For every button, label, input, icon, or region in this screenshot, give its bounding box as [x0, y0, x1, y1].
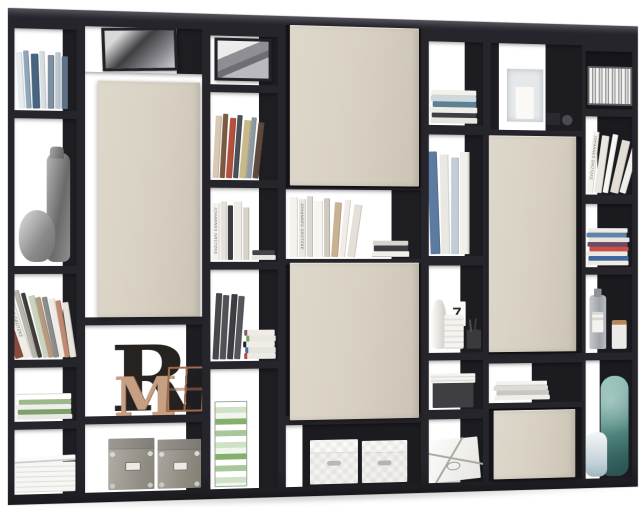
wire-cube-lantern: [166, 366, 202, 412]
compartment-c7-r4: [586, 275, 633, 353]
wire-file-rack: [587, 66, 632, 106]
magazine: [587, 251, 628, 256]
compartment-c7-r1: [586, 51, 633, 110]
magazine: [587, 242, 627, 247]
magazine: [244, 330, 275, 336]
magazine: [589, 247, 628, 252]
compartment-c3-r4: [210, 270, 277, 362]
oversized-book: [451, 157, 459, 254]
compartment-c4-r4: [286, 423, 421, 488]
compartment-c6-r3: [489, 362, 582, 403]
compartment-c2-r4: [85, 422, 202, 493]
paper-stack: [431, 373, 476, 383]
book-spine-gruetzke: JOHANNES GRÜTZKE: [212, 203, 219, 260]
glass-hurricane: [506, 68, 544, 123]
compartment-c3-r5: [210, 368, 277, 489]
small-white-vase: [586, 432, 608, 477]
compartment-c3-r1: [210, 35, 277, 85]
candle-jar-wood-lid: [612, 320, 627, 349]
white-ridged-vase: [444, 315, 463, 349]
glass-sphere: [562, 115, 572, 125]
glass-bottle: [589, 295, 606, 349]
flat-book: [432, 90, 477, 97]
photo-frame-abstract: [101, 27, 178, 71]
book-spine: [228, 205, 233, 260]
flat-book: [432, 113, 477, 119]
magazine: [587, 261, 628, 266]
paper-pile: [495, 395, 550, 401]
compartment-c5-r1: [429, 41, 483, 126]
compartment-c3-r3: JOHANNES GRÜTZKE: [210, 188, 277, 262]
compartment-c2-r1: [85, 26, 202, 76]
compartment-c7-r2: JOHANNES GRÜTZKE: [586, 116, 633, 195]
magazine: [246, 335, 275, 341]
bottle-neck: [594, 289, 601, 297]
book-spine: [39, 51, 47, 109]
compartment-c5-r4: [429, 360, 483, 410]
book-spine-gruetzke: JOHANNES GRÜTZKE: [299, 199, 306, 257]
flat-book: [430, 107, 478, 114]
magazine: [19, 399, 71, 405]
door-c: [290, 263, 419, 421]
storage-box-grey: [108, 438, 154, 490]
newspaper-stack: [16, 461, 76, 492]
book-spine: [221, 201, 227, 259]
oversized-book: [460, 152, 470, 254]
magazine: [244, 353, 276, 359]
pillar-candle: [516, 84, 534, 119]
magazine: [243, 341, 275, 347]
magazine: [588, 237, 629, 242]
flat-book: [431, 117, 478, 123]
magazine: [17, 414, 73, 420]
door-d: [489, 135, 576, 352]
round-concrete-pot: [19, 210, 55, 262]
pencil-cup: [467, 330, 481, 349]
compartment-c2-r3: R M: [85, 324, 202, 416]
book-spine: [234, 202, 242, 260]
oversized-book: [440, 155, 451, 255]
flat-book: [433, 101, 477, 108]
book-spine-title: JOHANNES GRÜTZKE: [213, 207, 218, 254]
drawer-e: [494, 409, 576, 479]
tall-concrete-vase-neck: [50, 147, 64, 159]
compartment-c1-r5: [14, 429, 76, 495]
compartment-c4-r2: JOHANNES GRÜTZKE: [286, 189, 421, 259]
paper-pile: [496, 381, 547, 387]
flat-book: [373, 241, 408, 246]
shelf-unit: INNENARCHITEKTUR JOHANNES GRÜTZKE R M: [8, 8, 638, 505]
quilted-storage-box: [362, 440, 407, 483]
book-spine-title: JOHANNES GRÜTZKE: [300, 203, 305, 250]
storage-box-label: [125, 462, 141, 471]
bottle-label: [592, 312, 603, 333]
compartment-c3-r2: [210, 92, 277, 180]
flat-book: [431, 95, 477, 102]
compartment-c1-r1: [14, 28, 76, 111]
compartment-c5-r2: [429, 134, 483, 256]
magazine: [588, 256, 628, 261]
pencil: [469, 319, 472, 331]
dark-box: [433, 379, 474, 408]
paper-pile: [494, 385, 548, 391]
magazine: [587, 233, 627, 238]
book-spine: [290, 197, 298, 257]
photo-frame-mountain: [214, 37, 271, 81]
quilted-box-handle: [378, 460, 392, 465]
magazine: [18, 409, 72, 415]
shelf-scene: INNENARCHITEKTUR JOHANNES GRÜTZKE R M: [8, 8, 638, 505]
storage-box-label: [173, 462, 188, 471]
magazine: [245, 347, 275, 353]
flat-book: [374, 245, 408, 251]
door-a: [98, 80, 200, 317]
dvd-case-stack: [214, 401, 247, 487]
compartment-c7-r5: [586, 360, 633, 479]
flat-book: [251, 255, 275, 260]
wrapped-gift-box: [429, 436, 481, 483]
product-photo-stage: INNENARCHITEKTUR JOHANNES GRÜTZKE R M: [0, 0, 644, 520]
book-spine: [48, 55, 54, 109]
compartment-c6-r1: [491, 43, 582, 131]
storage-box-grey: [158, 439, 202, 489]
compartment-c1-r4: [14, 367, 76, 422]
book-spine: [307, 196, 313, 257]
compartment-c1-r3: INNENARCHITEKTUR JOHANNES GRÜTZKE: [14, 274, 76, 360]
paper-pile: [496, 390, 548, 396]
door-b: [290, 25, 419, 187]
book-spine: [324, 198, 330, 257]
flat-book: [372, 251, 409, 257]
book-spine: [55, 52, 60, 109]
book-spine: [243, 207, 249, 260]
oversized-book: [429, 151, 441, 254]
compartment-c1-r2: [14, 118, 76, 266]
quilted-box-handle: [327, 461, 341, 466]
compartment-c5-r3: 7: [429, 265, 483, 353]
compartment-c5-r5: [429, 418, 483, 483]
book-spine: [314, 201, 323, 257]
flat-book: [252, 250, 274, 255]
twine-bow: [446, 461, 460, 471]
magazine: [588, 228, 627, 233]
quilted-storage-box: [310, 439, 358, 484]
dark-votive: [546, 113, 560, 125]
magazine: [17, 394, 72, 400]
magazine: [16, 404, 72, 410]
compartment-c7-r3: [586, 204, 633, 267]
book-spine: [62, 56, 68, 109]
